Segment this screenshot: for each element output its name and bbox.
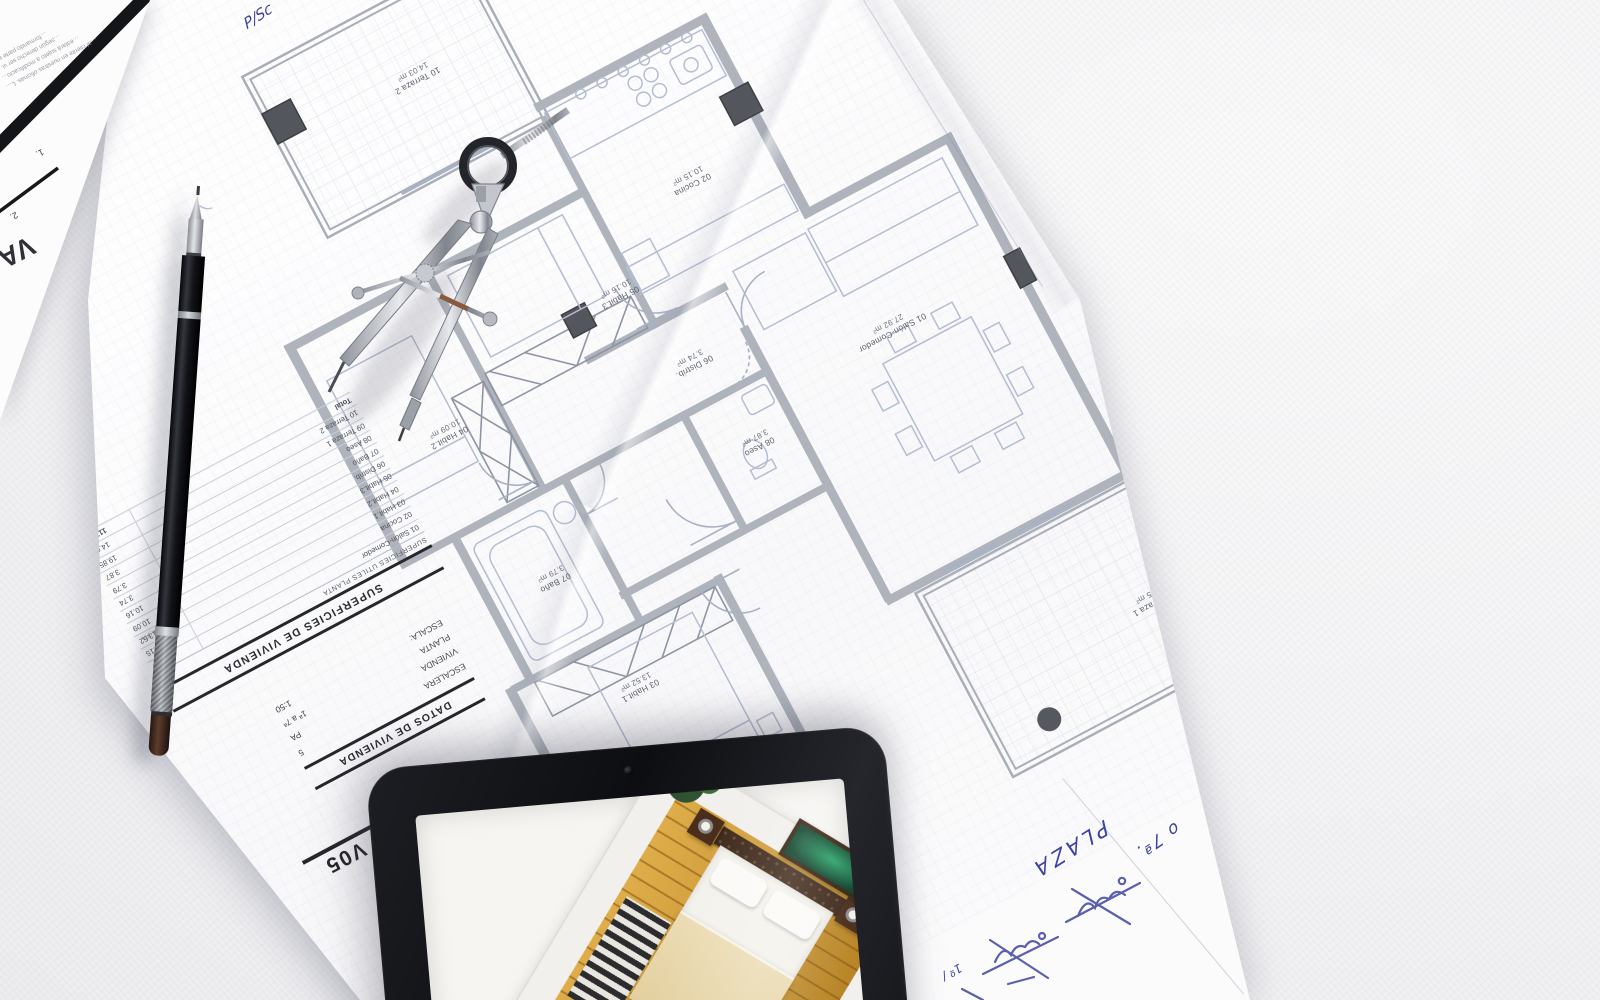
pencil-knurled-grip — [150, 635, 177, 712]
render-headboard — [714, 826, 849, 918]
render-wood-floor — [525, 793, 876, 1000]
render-plant — [660, 778, 712, 809]
render-bed — [629, 830, 843, 1000]
pencil-body-band — [177, 311, 200, 320]
front-camera — [624, 766, 634, 776]
render-green-artwork — [778, 818, 877, 901]
needle-point — [329, 362, 344, 392]
lead-tip — [399, 428, 404, 441]
pencil-neck — [186, 218, 203, 253]
render-pillow — [761, 888, 823, 942]
interior-render-image — [472, 778, 876, 1000]
render-bed-sheet — [680, 845, 833, 980]
extension-rod — [502, 110, 568, 156]
thumbwheel — [416, 264, 434, 282]
photo-scene: 01 Salón-Comedor 27.92 m² 02 Cocina 10.1… — [0, 0, 1600, 1000]
pencil-body — [156, 255, 205, 628]
tablet-screen[interactable] — [415, 778, 876, 1000]
render-nightstand — [834, 896, 872, 934]
render-plant — [691, 778, 727, 799]
pencil-end-cap — [148, 715, 171, 756]
render-lamp — [695, 816, 716, 837]
pencil-tip-cone — [190, 195, 204, 220]
yoke-screw — [476, 186, 486, 202]
drafting-compass — [288, 70, 578, 450]
pencil-lead — [196, 186, 200, 195]
rod-nut — [483, 312, 497, 326]
render-lamp — [843, 905, 864, 926]
tablet-device — [365, 725, 920, 1000]
rod-end-nut — [352, 287, 364, 299]
lead-holder — [400, 398, 421, 430]
render-striped-rug — [567, 896, 671, 1000]
render-walls — [480, 778, 877, 1000]
render-pillow — [708, 856, 770, 910]
render-nightstand — [687, 808, 725, 846]
render-duvet — [629, 910, 795, 1000]
